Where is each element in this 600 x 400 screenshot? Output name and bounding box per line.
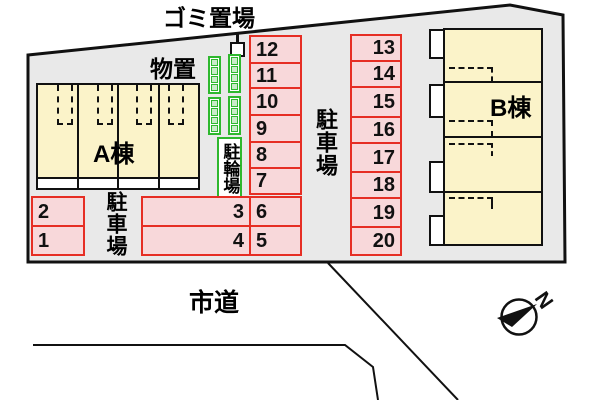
parking-space-13: 13 xyxy=(350,34,402,62)
building-b-label: B棟 xyxy=(490,96,531,121)
bike-rack-cell xyxy=(231,108,238,116)
bike-rack-cell xyxy=(231,99,238,107)
bike-rack xyxy=(208,56,221,94)
parking-space-5: 5 xyxy=(249,225,302,256)
city-road-label: 市道 xyxy=(189,290,239,316)
parking-space-19: 19 xyxy=(350,197,402,228)
bike-rack-cell xyxy=(211,117,218,124)
bike-rack xyxy=(228,54,241,93)
bike-rack-cell xyxy=(211,100,218,107)
parking-space-8: 8 xyxy=(249,141,302,169)
parking-space-7: 7 xyxy=(249,167,302,195)
closet-outline xyxy=(97,85,113,125)
building-b-divider xyxy=(444,191,542,193)
building-b-entrance xyxy=(429,84,445,118)
closet-outline xyxy=(449,197,493,209)
closet-outline xyxy=(168,85,184,125)
closet-outline xyxy=(449,67,493,82)
parking-space-14: 14 xyxy=(350,60,402,88)
building-a-divider xyxy=(158,85,160,177)
bike-rack-cell xyxy=(211,76,218,83)
parking-space-12: 12 xyxy=(249,35,302,64)
bike-rack xyxy=(208,97,221,135)
bike-rack-cell xyxy=(231,57,238,65)
bike-rack-cell xyxy=(231,66,238,74)
property-boundary-line xyxy=(328,263,458,400)
parking-space-18: 18 xyxy=(350,171,402,199)
road-edge-line xyxy=(33,345,378,400)
closet-outline xyxy=(449,143,493,156)
building-a-label: A棟 xyxy=(93,142,134,167)
closet-outline xyxy=(449,120,493,137)
bike-rack-cell xyxy=(211,84,218,91)
closet-outline xyxy=(136,85,152,125)
closet-outline xyxy=(57,85,73,125)
bike-rack-cell xyxy=(211,108,218,115)
parking-space-1: 1 xyxy=(31,225,85,256)
parking-space-2: 2 xyxy=(31,196,85,227)
bike-rack-cell xyxy=(231,116,238,124)
balcony-divider xyxy=(158,178,160,189)
parking-space-9: 9 xyxy=(249,114,302,143)
bike-rack xyxy=(228,96,241,135)
building-b-entrance xyxy=(429,29,445,59)
parking-space-6: 6 xyxy=(249,196,302,227)
parking-space-16: 16 xyxy=(350,116,402,144)
building-a-divider xyxy=(77,85,79,177)
parking-space-15: 15 xyxy=(350,86,402,118)
balcony-divider xyxy=(117,178,119,189)
building-b-entrance xyxy=(429,215,445,246)
storage-label: 物置 xyxy=(150,57,196,81)
building-b-entrance xyxy=(429,161,445,193)
balcony-divider xyxy=(77,178,79,189)
parking-lot-label-right: 駐車場 xyxy=(311,108,337,177)
bike-rack-cell xyxy=(231,83,238,91)
bike-rack-cell xyxy=(211,59,218,66)
bike-rack-cell xyxy=(231,125,238,133)
bike-rack-cell xyxy=(211,67,218,74)
bike-rack-cell xyxy=(231,74,238,82)
site-plan: N A棟 B棟 ゴミ置場 物置 駐輪場 駐車場 xyxy=(0,0,600,400)
north-arrow-icon: N xyxy=(497,288,557,335)
bike-rack-cell xyxy=(211,125,218,132)
parking-space-11: 11 xyxy=(249,62,302,89)
parking-space-10: 10 xyxy=(249,87,302,116)
parking-lot-label-left: 駐車場 xyxy=(102,191,126,257)
bicycle-parking-label: 駐輪場 xyxy=(221,143,239,194)
parking-space-17: 17 xyxy=(350,142,402,173)
parking-space-20: 20 xyxy=(350,226,402,256)
bicycle-parking-sign: 駐輪場 xyxy=(217,137,242,199)
parking-space-4: 4 xyxy=(141,225,251,256)
parking-space-3: 3 xyxy=(141,196,251,227)
garbage-area-label: ゴミ置場 xyxy=(163,6,255,30)
